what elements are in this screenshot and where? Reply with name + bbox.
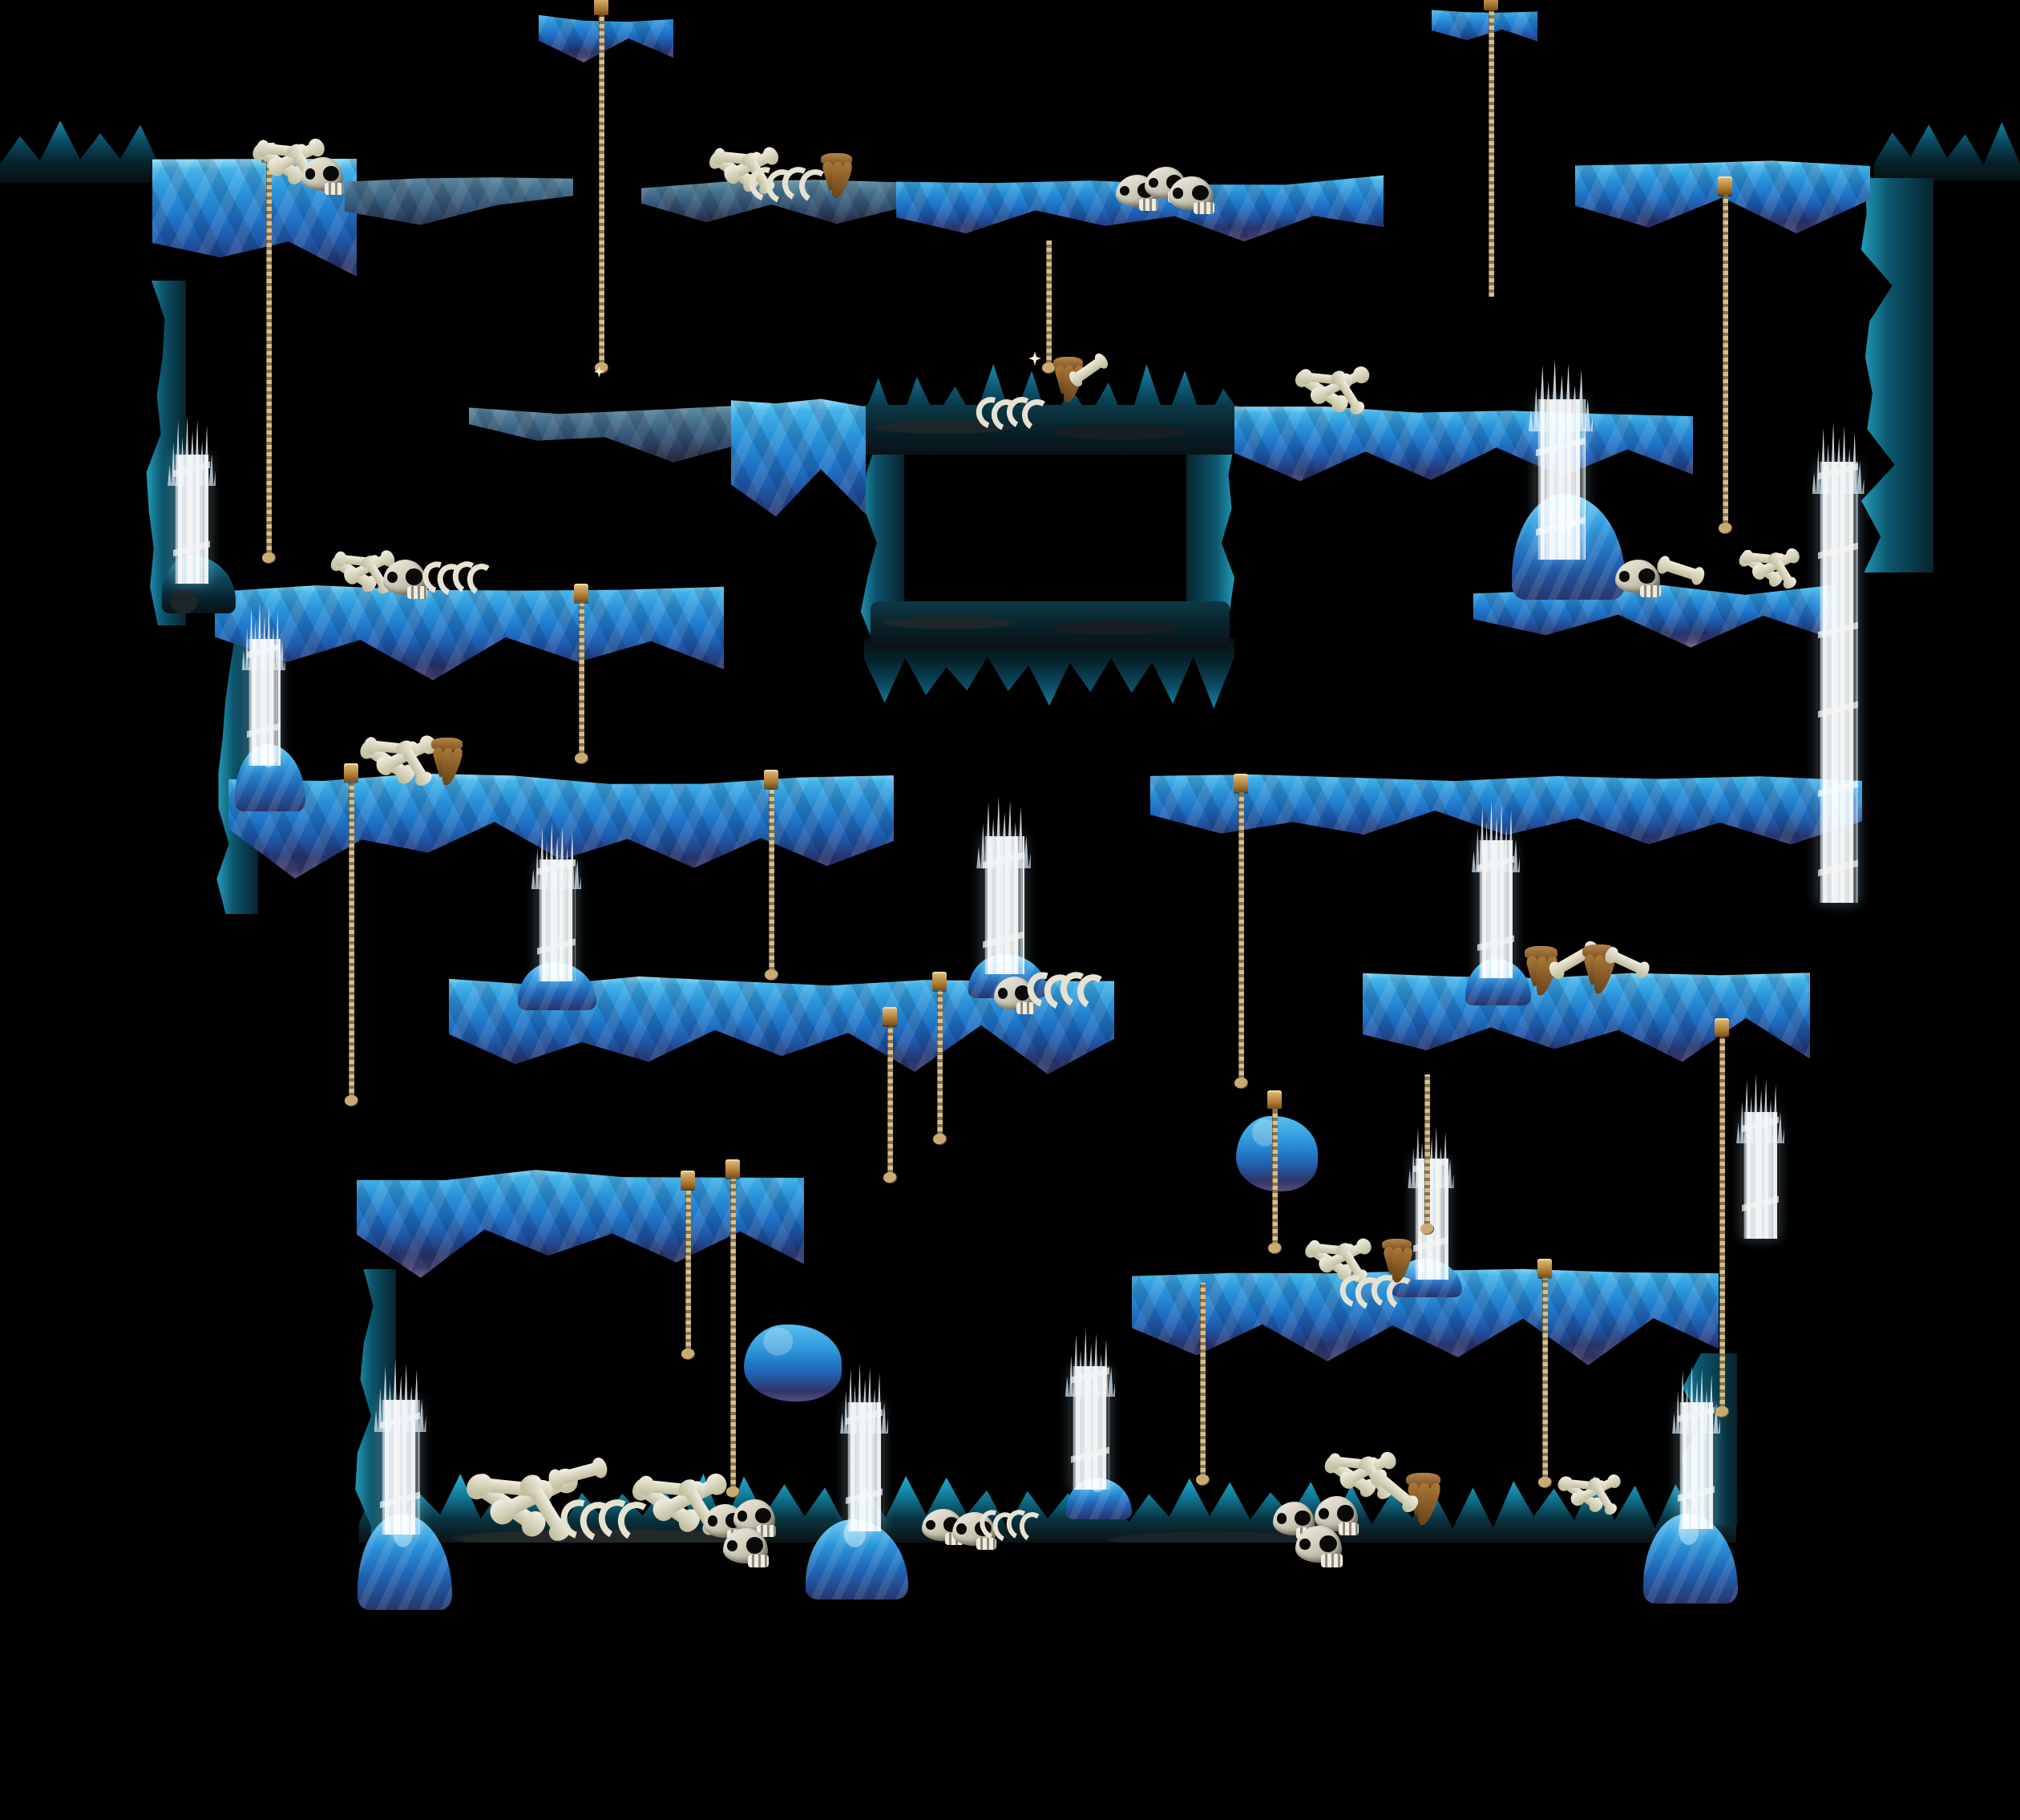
waterfall xyxy=(1678,1365,1715,1529)
climbing-rope[interactable] xyxy=(266,159,272,557)
rope-knot-icon xyxy=(1196,1474,1209,1485)
level-stage xyxy=(0,0,2020,1820)
bone-pile-icon xyxy=(1297,374,1374,415)
climbing-rope[interactable] xyxy=(1489,8,1494,297)
climbing-rope[interactable] xyxy=(349,779,354,1100)
claw-icon xyxy=(430,742,465,787)
spike-strip xyxy=(864,638,1234,714)
climbing-rope[interactable] xyxy=(1542,1275,1548,1482)
spike-strip xyxy=(1874,117,2020,181)
skull-icon xyxy=(1615,560,1660,593)
platform-row2-right-arm xyxy=(1234,405,1693,491)
climbing-rope[interactable] xyxy=(730,1175,736,1491)
claw-icon xyxy=(1380,1243,1414,1284)
rope-knot-icon xyxy=(345,1095,358,1106)
waterfall xyxy=(1477,800,1514,978)
platform-row6-left xyxy=(357,1167,804,1278)
platform-row2-left-b xyxy=(731,397,866,548)
waterfall xyxy=(846,1363,883,1531)
waterfall xyxy=(983,796,1024,974)
bone-pile-icon xyxy=(1559,1480,1625,1515)
climbing-rope[interactable] xyxy=(769,786,774,974)
climbing-rope[interactable] xyxy=(579,600,584,758)
climbing-rope[interactable] xyxy=(1723,192,1728,528)
rope-peg-icon xyxy=(932,972,947,990)
rope-knot-icon xyxy=(262,552,275,563)
rope-peg-icon xyxy=(344,763,358,782)
waterfall xyxy=(173,415,210,584)
waterfall xyxy=(1413,1122,1448,1280)
rope-peg-icon xyxy=(574,584,588,602)
rope-peg-icon xyxy=(1234,774,1248,792)
skull-icon xyxy=(383,560,426,595)
rope-knot-icon xyxy=(1538,1477,1551,1487)
platform-float-top-left xyxy=(539,10,673,63)
rope-peg-icon xyxy=(1267,1090,1282,1109)
floating-rock-float-rock-low xyxy=(744,1325,842,1401)
sparkle-icon[interactable] xyxy=(1028,351,1041,366)
climbing-rope[interactable] xyxy=(1424,1074,1430,1228)
ribcage-icon xyxy=(980,1510,1043,1543)
rope-knot-icon xyxy=(1268,1243,1281,1253)
rope-knot-icon xyxy=(681,1349,694,1359)
waterfall xyxy=(1818,422,1858,903)
climbing-rope[interactable] xyxy=(1046,241,1052,367)
rope-knot-icon xyxy=(883,1172,896,1183)
ribcage-icon xyxy=(976,397,1048,432)
rope-peg-icon xyxy=(594,0,608,15)
waterfall xyxy=(380,1360,420,1535)
waterfall xyxy=(247,601,281,766)
rope-peg-icon xyxy=(725,1159,740,1178)
cave-wall xyxy=(1856,178,1933,572)
climbing-rope[interactable] xyxy=(937,988,943,1139)
cave-rock-bar xyxy=(871,601,1230,649)
bone-icon xyxy=(1660,559,1702,582)
climbing-rope[interactable] xyxy=(1272,1106,1278,1248)
climbing-rope[interactable] xyxy=(887,1023,893,1177)
waterfall xyxy=(1742,1074,1779,1239)
waterfall xyxy=(1071,1329,1109,1490)
claw-icon xyxy=(819,157,854,200)
rope-peg-icon xyxy=(1715,1018,1729,1037)
waterfall xyxy=(1536,359,1586,560)
rope-knot-icon xyxy=(575,753,588,763)
rope-knot-icon xyxy=(765,969,778,980)
skull-icon xyxy=(733,1499,775,1533)
skull-icon xyxy=(1169,176,1214,210)
ribcage-icon xyxy=(749,167,828,205)
rope-peg-icon xyxy=(1484,0,1498,10)
rope-knot-icon xyxy=(1234,1078,1247,1088)
spike-strip xyxy=(0,117,160,183)
climbing-rope[interactable] xyxy=(599,13,604,367)
climbing-rope[interactable] xyxy=(1238,790,1244,1082)
climbing-rope[interactable] xyxy=(1719,1034,1725,1411)
rope-knot-icon xyxy=(1719,523,1731,533)
ribcage-icon xyxy=(1028,972,1106,1012)
rope-peg-icon xyxy=(764,770,778,788)
platform-float-top-right xyxy=(1432,6,1537,53)
platform-row2-left-a xyxy=(469,402,741,473)
climbing-rope[interactable] xyxy=(685,1187,691,1353)
rope-peg-icon xyxy=(1718,176,1732,195)
rope-peg-icon xyxy=(883,1007,897,1025)
climbing-rope[interactable] xyxy=(1200,1283,1206,1479)
rope-peg-icon xyxy=(1537,1259,1552,1277)
bone-pile-icon xyxy=(1741,553,1804,592)
ribcage-icon xyxy=(423,561,494,598)
platform-row1-left-b xyxy=(345,170,573,244)
waterfall xyxy=(537,823,576,981)
rope-knot-icon xyxy=(933,1134,946,1144)
rope-peg-icon xyxy=(681,1171,695,1189)
